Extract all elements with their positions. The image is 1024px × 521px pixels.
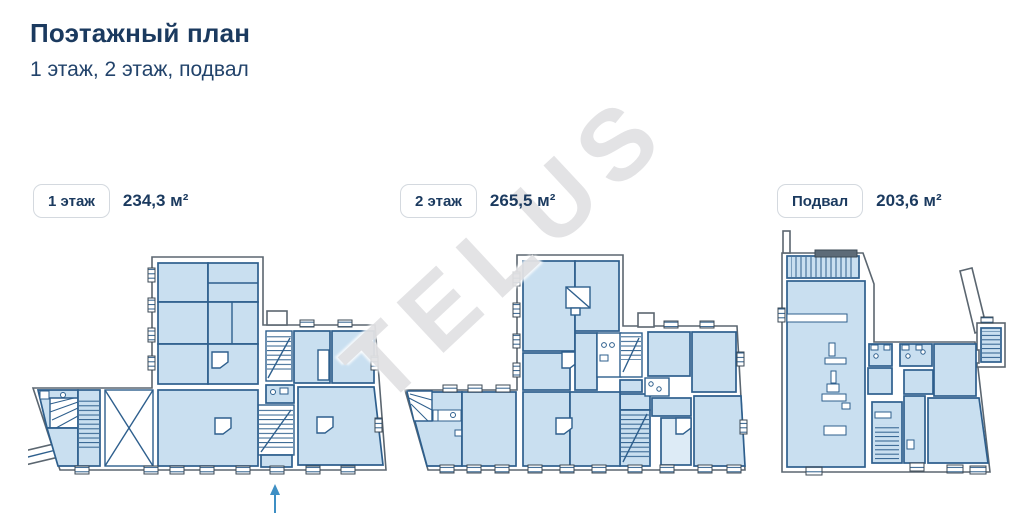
bathroom [645,378,669,396]
floor-2-chip[interactable]: 2 этаж [400,184,477,218]
floor-2-area: 265,5 м² [490,191,556,211]
floor-1-plan-drawing [28,226,394,520]
page-subtitle: 1 этаж, 2 этаж, подвал [30,58,249,82]
main-hall [787,281,865,467]
window-bay [267,311,287,325]
basement-header: Подвал 203,6 м² [777,184,942,218]
page-title: Поэтажный план [30,18,250,49]
floor-2-plan-drawing [398,248,752,480]
floor-1-area: 234,3 м² [123,191,189,211]
wall-stub [783,231,790,253]
basement-chip[interactable]: Подвал [777,184,863,218]
basement-area: 203,6 м² [876,191,942,211]
floor-1-header: 1 этаж 234,3 м² [33,184,188,218]
winder-stairs [407,391,432,421]
floor-2-header: 2 этаж 265,5 м² [400,184,555,218]
window-bay [638,313,654,327]
entrance-arrow-icon [270,484,280,513]
floor-1-chip[interactable]: 1 этаж [33,184,110,218]
basement-plan-drawing [772,226,1012,482]
